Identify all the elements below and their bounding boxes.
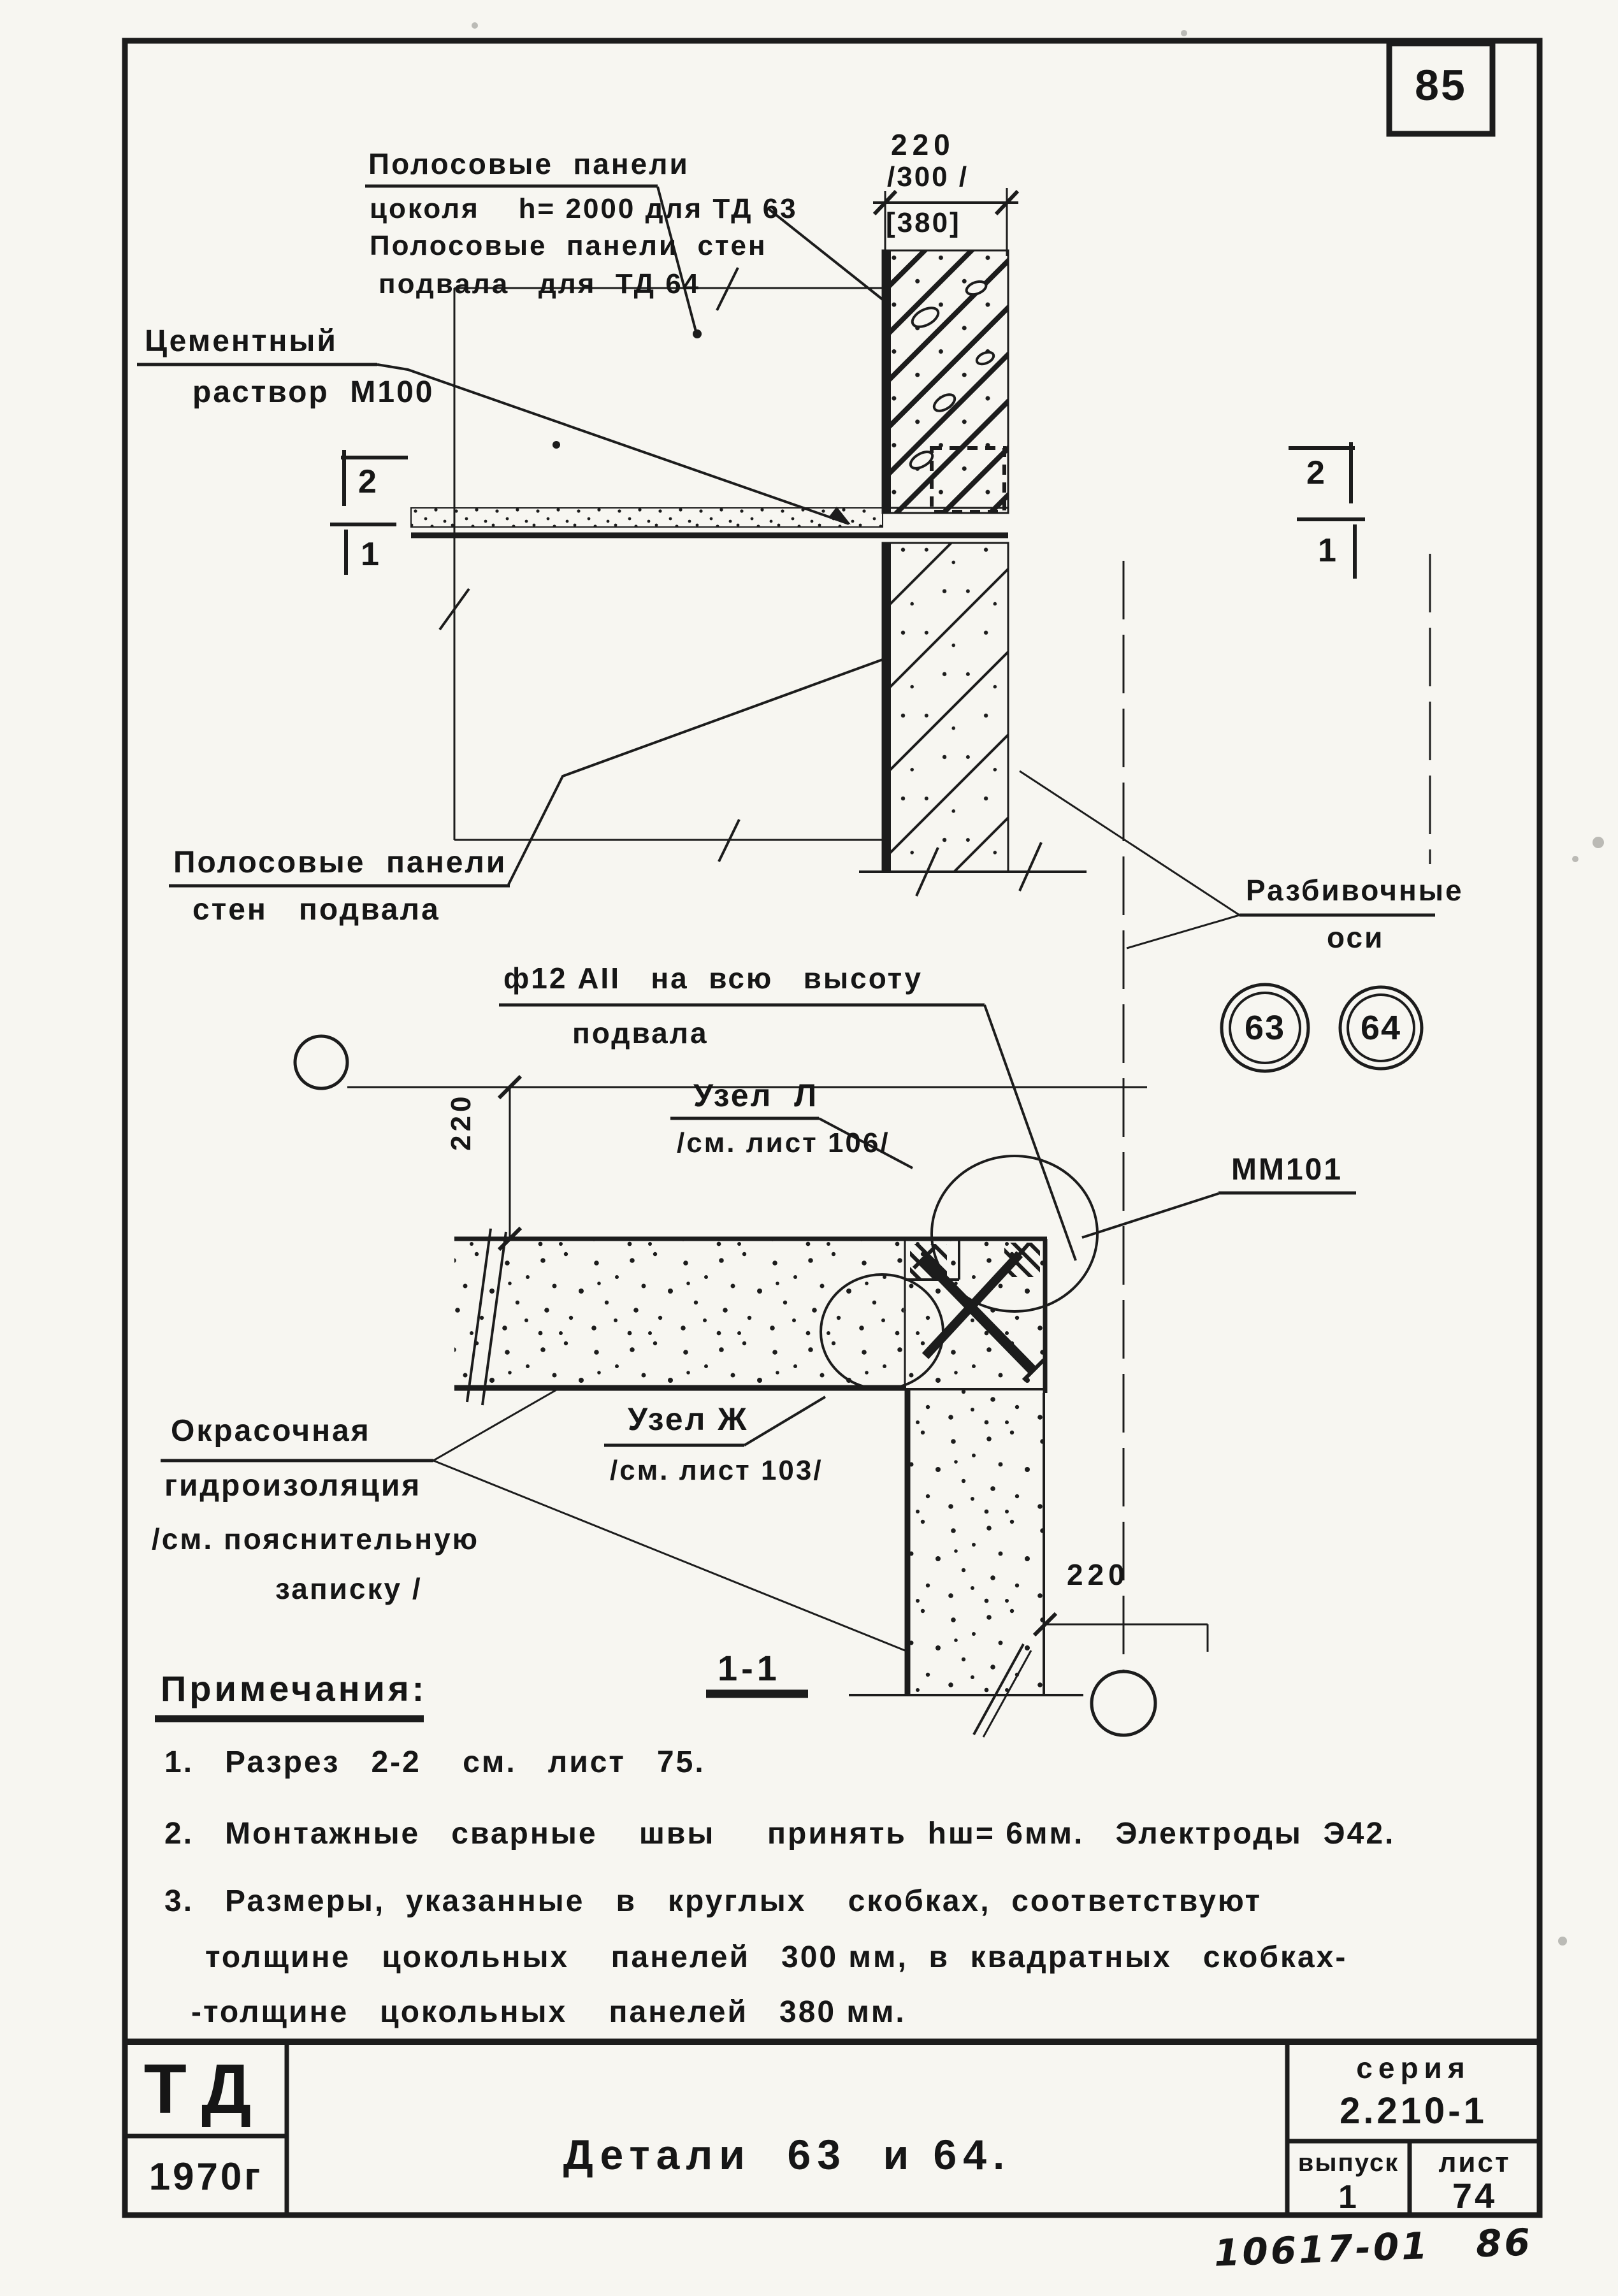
note-3-line3: -толщине цокольных панелей 380 мм. (191, 1997, 906, 2028)
title-block-series-value: 2.210-1 (1287, 2093, 1540, 2130)
mortar-label-line1: Цементный (145, 326, 338, 357)
notes-heading: Примечания: (161, 1671, 427, 1707)
section-view (137, 186, 1365, 896)
axis-bubble-63-label: 63 (1222, 1011, 1308, 1045)
title-block-year: 1970г (125, 2158, 287, 2196)
title-block-org: ТД (125, 2054, 287, 2125)
section-mark-right-2: 2 (1306, 456, 1327, 489)
dim-220-plan-left: 220 (447, 1093, 475, 1151)
axes-label-line1: Разбивочные (1246, 876, 1464, 905)
waterproofing-label-line3: /см. пояснительную (152, 1524, 479, 1554)
dim-220-top: 220 (891, 130, 955, 159)
waterproofing-label-line1: Окрасочная (171, 1416, 371, 1447)
axis-bubble-left (295, 1036, 347, 1088)
note-3-line2: толщине цокольных панелей 300 мм, в квад… (205, 1942, 1347, 1973)
plinth-panel-label-line1: Полосовые панели (368, 149, 690, 178)
node-zh-ref: /см. лист 103/ (610, 1457, 823, 1485)
title-block-series-label: серия (1287, 2053, 1540, 2083)
rebar-label-line1: ф12 АII на всю высоту (503, 964, 923, 993)
plan-wall-panel-horizontal (454, 1239, 904, 1388)
node-zh-title: Узел Ж (628, 1403, 748, 1435)
rebar-label-line2: подвала (572, 1018, 709, 1048)
title-block-issue-label: выпуск (1287, 2150, 1410, 2176)
plinth-panel-label-line2: цоколя h= 2000 для ТД 63 (370, 195, 798, 223)
title-block-sheet-value: 74 (1410, 2178, 1540, 2214)
title-block-sheet-label: лист (1410, 2149, 1540, 2177)
title-block-title: Детали 63 и 64. (287, 2134, 1287, 2176)
embed-mark-label: ММ101 (1231, 1155, 1343, 1185)
plan-wall-panel-vertical (905, 1389, 1045, 1695)
node-l-ref: /см. лист 106/ (677, 1129, 890, 1157)
dim-380-top: [380] (886, 209, 961, 237)
section-mark-right-1: 1 (1318, 534, 1338, 567)
mortar-label-line2: раствор М100 (192, 377, 434, 408)
corner-joint-block (905, 1239, 1045, 1393)
plinth-panel-label-line3: Полосовые панели стен (370, 232, 767, 260)
basement-panel-section (883, 543, 1008, 872)
axes-label-line2: оси (1327, 923, 1384, 952)
waterproofing-label-line4: записку / (275, 1574, 423, 1603)
dim-300-top: /300 / (887, 163, 969, 191)
section-ref-1-1: 1-1 (718, 1650, 781, 1686)
title-block-issue-value: 1 (1287, 2181, 1410, 2214)
note-3-line1: 3. Размеры, указанные в круглых скобках,… (164, 1886, 1262, 1917)
section-mark-left-2: 2 (358, 465, 379, 498)
note-2: 2. Монтажные сварные швы принять hш= 6мм… (164, 1819, 1395, 1849)
basement-panel-label-line1: Полосовые панели (173, 848, 507, 878)
plinth-panel-label-line4: подвала для ТД 64 (379, 270, 700, 298)
page-number: 85 (1389, 64, 1492, 107)
basement-panel-label-line2: стен подвала (192, 895, 440, 925)
axis-bubble-bottom (1092, 1671, 1155, 1735)
plan-view (161, 1005, 1356, 1737)
drawing-sheet: 85 Полосовые панели цоколя h= 2000 для Т… (0, 0, 1618, 2296)
waterproofing-label-line2: гидроизоляция (164, 1471, 421, 1501)
section-mark-left-1: 1 (361, 538, 381, 571)
note-1: 1. Разрез 2-2 см. лист 75. (164, 1747, 705, 1778)
plinth-panel-section (883, 250, 1008, 513)
dim-220-plan-bottom: 220 (1067, 1560, 1129, 1589)
axis-bubble-64-label: 64 (1340, 1011, 1422, 1045)
handwritten-stamp-code: 10617-01 86 (1213, 2223, 1533, 2271)
node-l-title: Узел Л (693, 1079, 818, 1111)
